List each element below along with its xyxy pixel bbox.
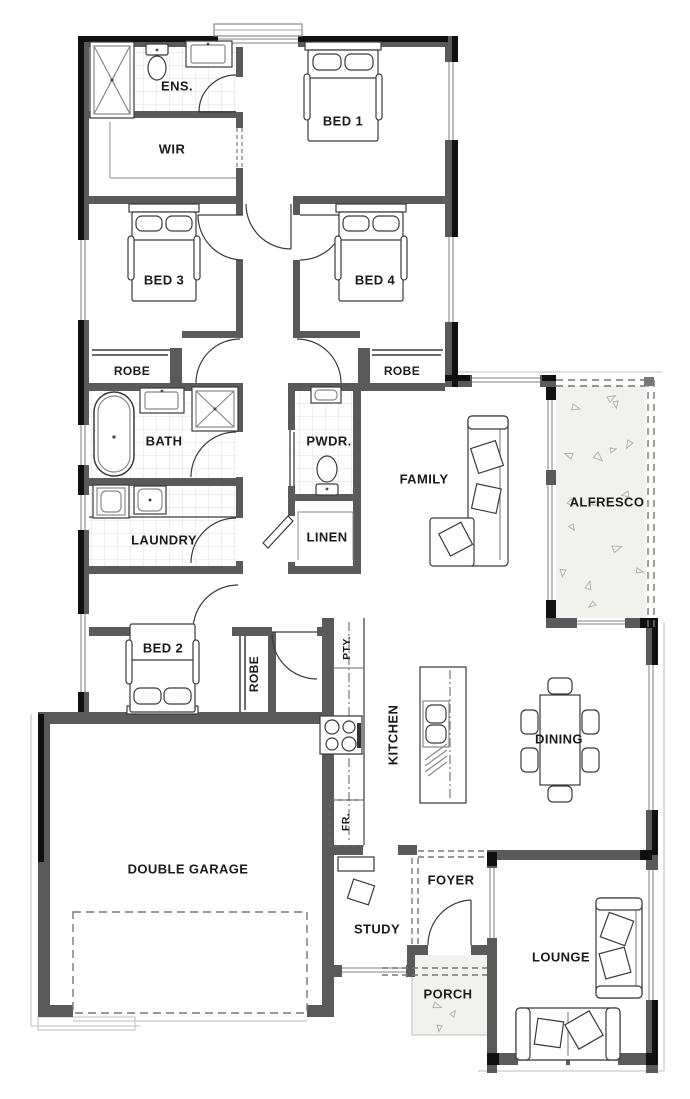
- front-door: [428, 900, 471, 945]
- room-label-garage: DOUBLE GARAGE: [128, 862, 249, 877]
- room-label-wir: WIR: [159, 142, 185, 157]
- room-label-powder: PWDR.: [306, 434, 351, 449]
- room-label-robe-bed3: ROBE: [114, 364, 150, 378]
- floorplan-drawing: [0, 0, 690, 1099]
- floor-plan: ENS. WIR BED 1 BED 3 BED 4 ROBE ROBE BAT…: [0, 0, 690, 1099]
- room-label-porch: PORCH: [424, 987, 473, 1002]
- room-label-linen: LINEN: [307, 530, 348, 545]
- room-label-laundry: LAUNDRY: [131, 533, 197, 548]
- room-label-bed2: BED 2: [143, 641, 183, 656]
- room-label-robe-bed2: ROBE: [247, 656, 261, 692]
- room-label-robe-bed4: ROBE: [384, 364, 420, 378]
- room-label-fridge: FR.: [340, 813, 352, 831]
- room-label-bed1: BED 1: [323, 114, 363, 129]
- hall-door-left: [196, 339, 240, 383]
- foyer-side-opening: [412, 858, 418, 945]
- robe2-sliders: [240, 636, 245, 712]
- room-label-ens: ENS.: [161, 79, 193, 94]
- room-label-pantry: PTY.: [341, 636, 353, 660]
- room-label-bed3: BED 3: [144, 273, 184, 288]
- robe4-sliders: [372, 350, 443, 355]
- room-label-bed4: BED 4: [355, 273, 395, 288]
- hall-door-right: [297, 339, 341, 383]
- wir-opening: [237, 128, 242, 168]
- alfresco-post: [644, 377, 654, 386]
- room-label-lounge: LOUNGE: [532, 950, 590, 965]
- alfresco-top-dashes: [556, 380, 646, 386]
- room-label-study: STUDY: [354, 922, 400, 937]
- powder-slider: [290, 430, 294, 486]
- bed1-door: [246, 204, 291, 249]
- room-label-foyer: FOYER: [428, 873, 475, 888]
- room-label-dining: DINING: [535, 732, 583, 747]
- room-label-alfresco: ALFRESCO: [570, 495, 645, 510]
- bed3-door: [198, 215, 243, 260]
- lounge-sofas: [516, 898, 642, 1060]
- alfresco-right-dashes: [648, 380, 654, 628]
- room-label-family: FAMILY: [400, 472, 449, 487]
- kitchen-door: [272, 632, 317, 679]
- garage-door-outline: [73, 912, 307, 1013]
- robe3-sliders: [92, 350, 170, 355]
- foyer-top-opening: [418, 851, 487, 857]
- room-label-kitchen: KITCHEN: [386, 705, 401, 766]
- study-desk: [338, 857, 375, 905]
- bed2-furniture: [126, 624, 199, 714]
- family-couch: [430, 416, 508, 566]
- linen-door: [263, 516, 293, 548]
- bed2-door: [193, 585, 238, 630]
- room-label-bath: BATH: [146, 434, 183, 449]
